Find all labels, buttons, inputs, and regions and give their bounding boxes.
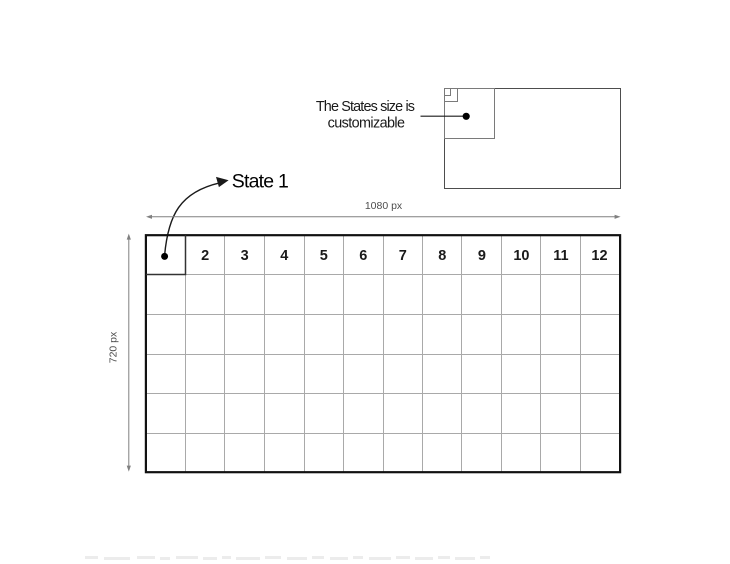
svg-text:2: 2: [201, 248, 209, 264]
svg-text:8: 8: [438, 248, 446, 264]
svg-text:1080 px: 1080 px: [365, 200, 403, 212]
svg-text:3: 3: [241, 248, 249, 264]
svg-text:7: 7: [399, 248, 407, 264]
svg-text:11: 11: [553, 248, 568, 264]
svg-text:The States size is: The States size is: [316, 99, 415, 115]
svg-text:12: 12: [591, 248, 607, 264]
svg-text:State 1: State 1: [232, 171, 288, 193]
svg-text:10: 10: [513, 248, 529, 264]
svg-text:5: 5: [320, 248, 328, 264]
svg-text:9: 9: [478, 248, 486, 264]
svg-text:customizable: customizable: [328, 116, 405, 132]
svg-text:720 px: 720 px: [108, 331, 120, 363]
svg-text:4: 4: [280, 248, 288, 264]
svg-text:6: 6: [359, 248, 367, 264]
